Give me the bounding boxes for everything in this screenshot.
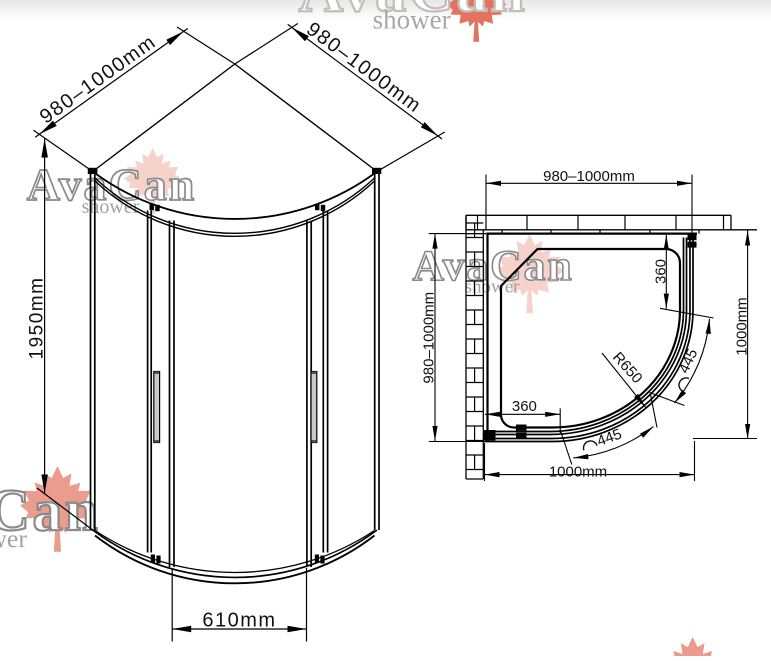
svg-text:shower: shower <box>0 524 27 553</box>
svg-text:360: 360 <box>512 398 537 415</box>
svg-text:610mm: 610mm <box>202 610 276 632</box>
svg-text:1000mm: 1000mm <box>549 464 607 481</box>
svg-text:shower: shower <box>465 276 521 297</box>
svg-text:980–1000mm: 980–1000mm <box>421 292 438 384</box>
svg-text:shower: shower <box>373 5 451 35</box>
svg-text:1000mm: 1000mm <box>734 297 751 355</box>
svg-text:980–1000mm: 980–1000mm <box>543 168 635 185</box>
svg-text:360: 360 <box>653 259 670 284</box>
svg-text:1950mm: 1950mm <box>27 277 48 360</box>
